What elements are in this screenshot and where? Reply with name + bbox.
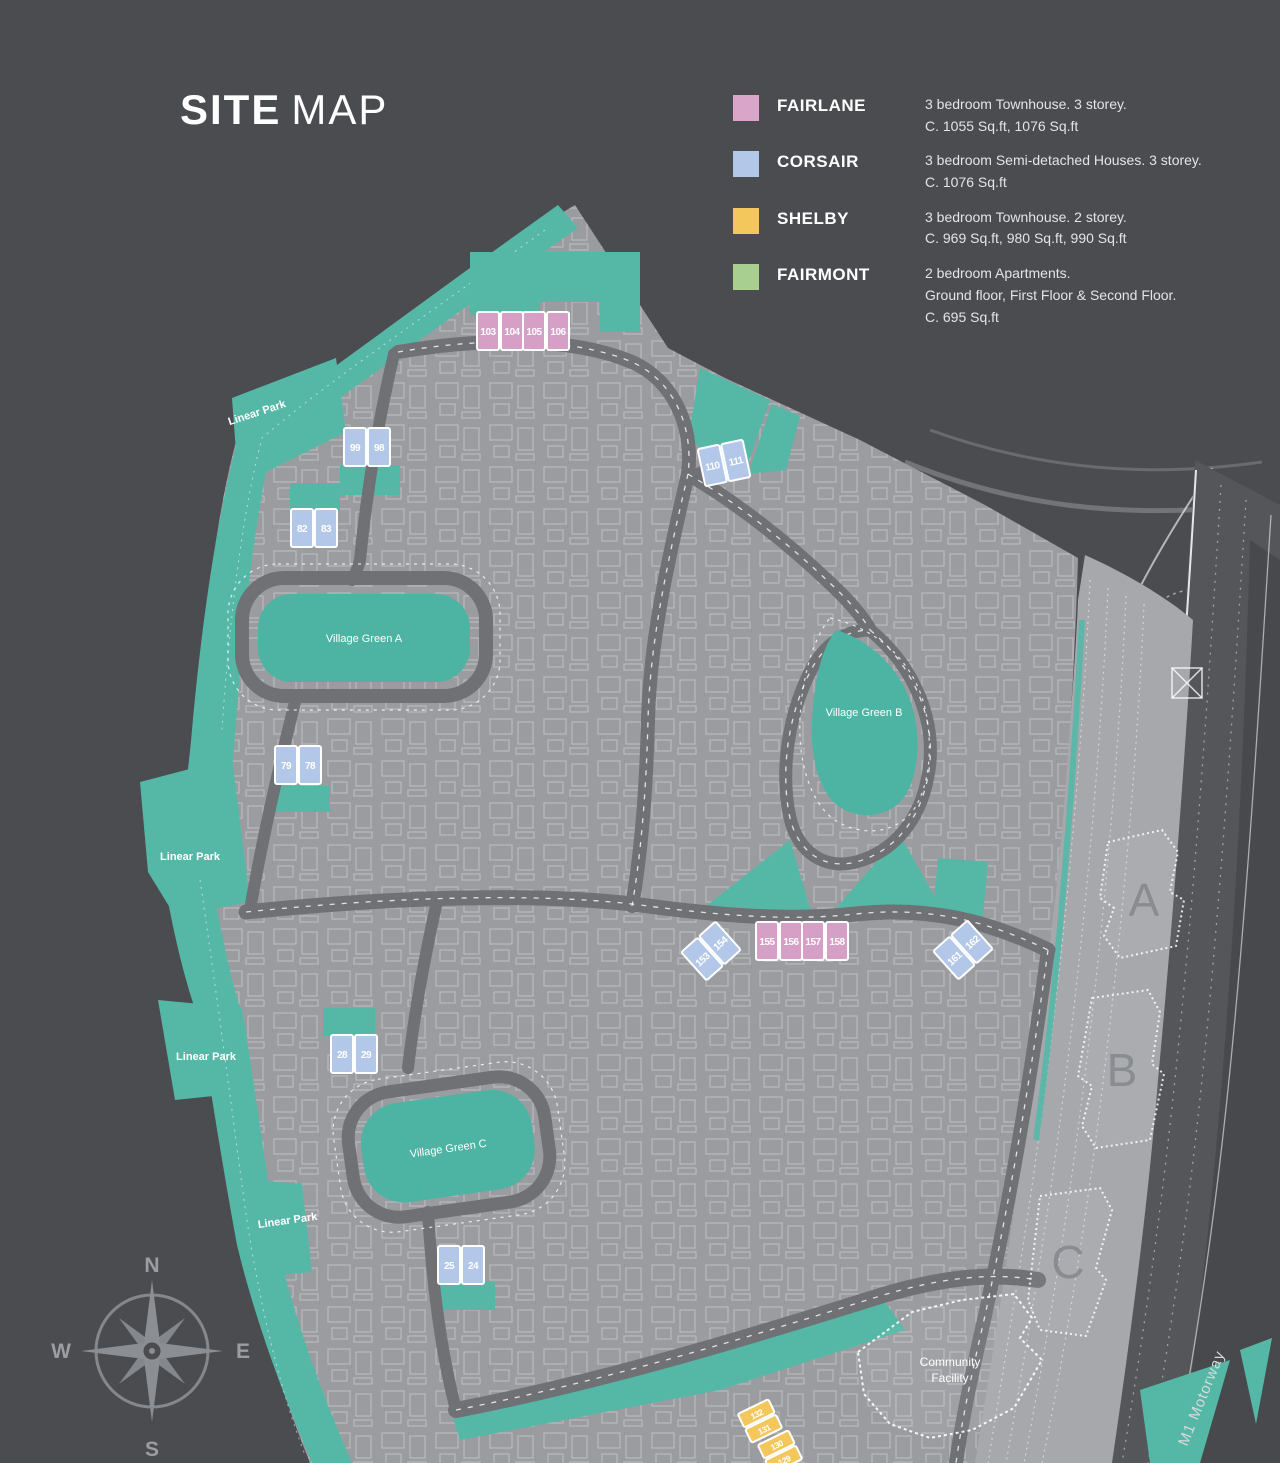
- svg-text:158: 158: [829, 937, 845, 948]
- plot-marker: 2524: [438, 1246, 484, 1284]
- plot-marker: 157158: [802, 922, 848, 960]
- svg-text:78: 78: [305, 761, 316, 772]
- svg-text:Facility: Facility: [931, 1371, 968, 1385]
- svg-text:156: 156: [783, 937, 799, 948]
- building-a-label: A: [1129, 874, 1160, 926]
- building-c-label: C: [1051, 1236, 1084, 1288]
- svg-text:Village Green B: Village Green B: [826, 707, 903, 719]
- compass-north-label: N: [144, 1254, 159, 1277]
- svg-text:157: 157: [805, 937, 821, 948]
- svg-text:Community: Community: [920, 1355, 981, 1369]
- site-map: Village Green A Village Green B Village …: [0, 0, 1280, 1463]
- compass-west-label: W: [51, 1340, 71, 1363]
- svg-text:99: 99: [350, 443, 361, 454]
- plot-marker: 8283: [291, 509, 337, 547]
- svg-text:29: 29: [361, 1050, 372, 1061]
- linear-park-label: Linear Park: [160, 851, 221, 863]
- building-b-label: B: [1107, 1044, 1138, 1096]
- svg-text:103: 103: [480, 327, 496, 338]
- linear-park-label: Linear Park: [176, 1051, 237, 1063]
- svg-text:155: 155: [759, 937, 775, 948]
- plot-marker: 103104: [477, 312, 523, 350]
- svg-text:24: 24: [468, 1261, 479, 1272]
- svg-text:25: 25: [444, 1261, 455, 1272]
- compass-south-label: S: [145, 1438, 159, 1461]
- svg-text:82: 82: [297, 524, 308, 535]
- plot-marker: 7978: [275, 746, 321, 784]
- svg-text:106: 106: [550, 327, 566, 338]
- svg-text:104: 104: [504, 327, 520, 338]
- svg-text:Village Green A: Village Green A: [326, 633, 403, 645]
- site-map-page: SITEMAP FAIRLANE 3 bedroom Townhouse. 3 …: [0, 0, 1280, 1463]
- plot-marker: 110111: [698, 440, 751, 487]
- svg-text:83: 83: [321, 524, 332, 535]
- compass-east-label: E: [236, 1340, 250, 1363]
- compass-rose: N E S W: [51, 1254, 250, 1461]
- plot-marker: 9998: [344, 428, 390, 466]
- svg-text:98: 98: [374, 443, 385, 454]
- svg-text:105: 105: [526, 327, 542, 338]
- plot-marker: 105106: [523, 312, 569, 350]
- svg-text:28: 28: [337, 1050, 348, 1061]
- plot-marker: 155156: [756, 922, 802, 960]
- svg-text:79: 79: [281, 761, 292, 772]
- plot-marker: 2829: [331, 1035, 377, 1073]
